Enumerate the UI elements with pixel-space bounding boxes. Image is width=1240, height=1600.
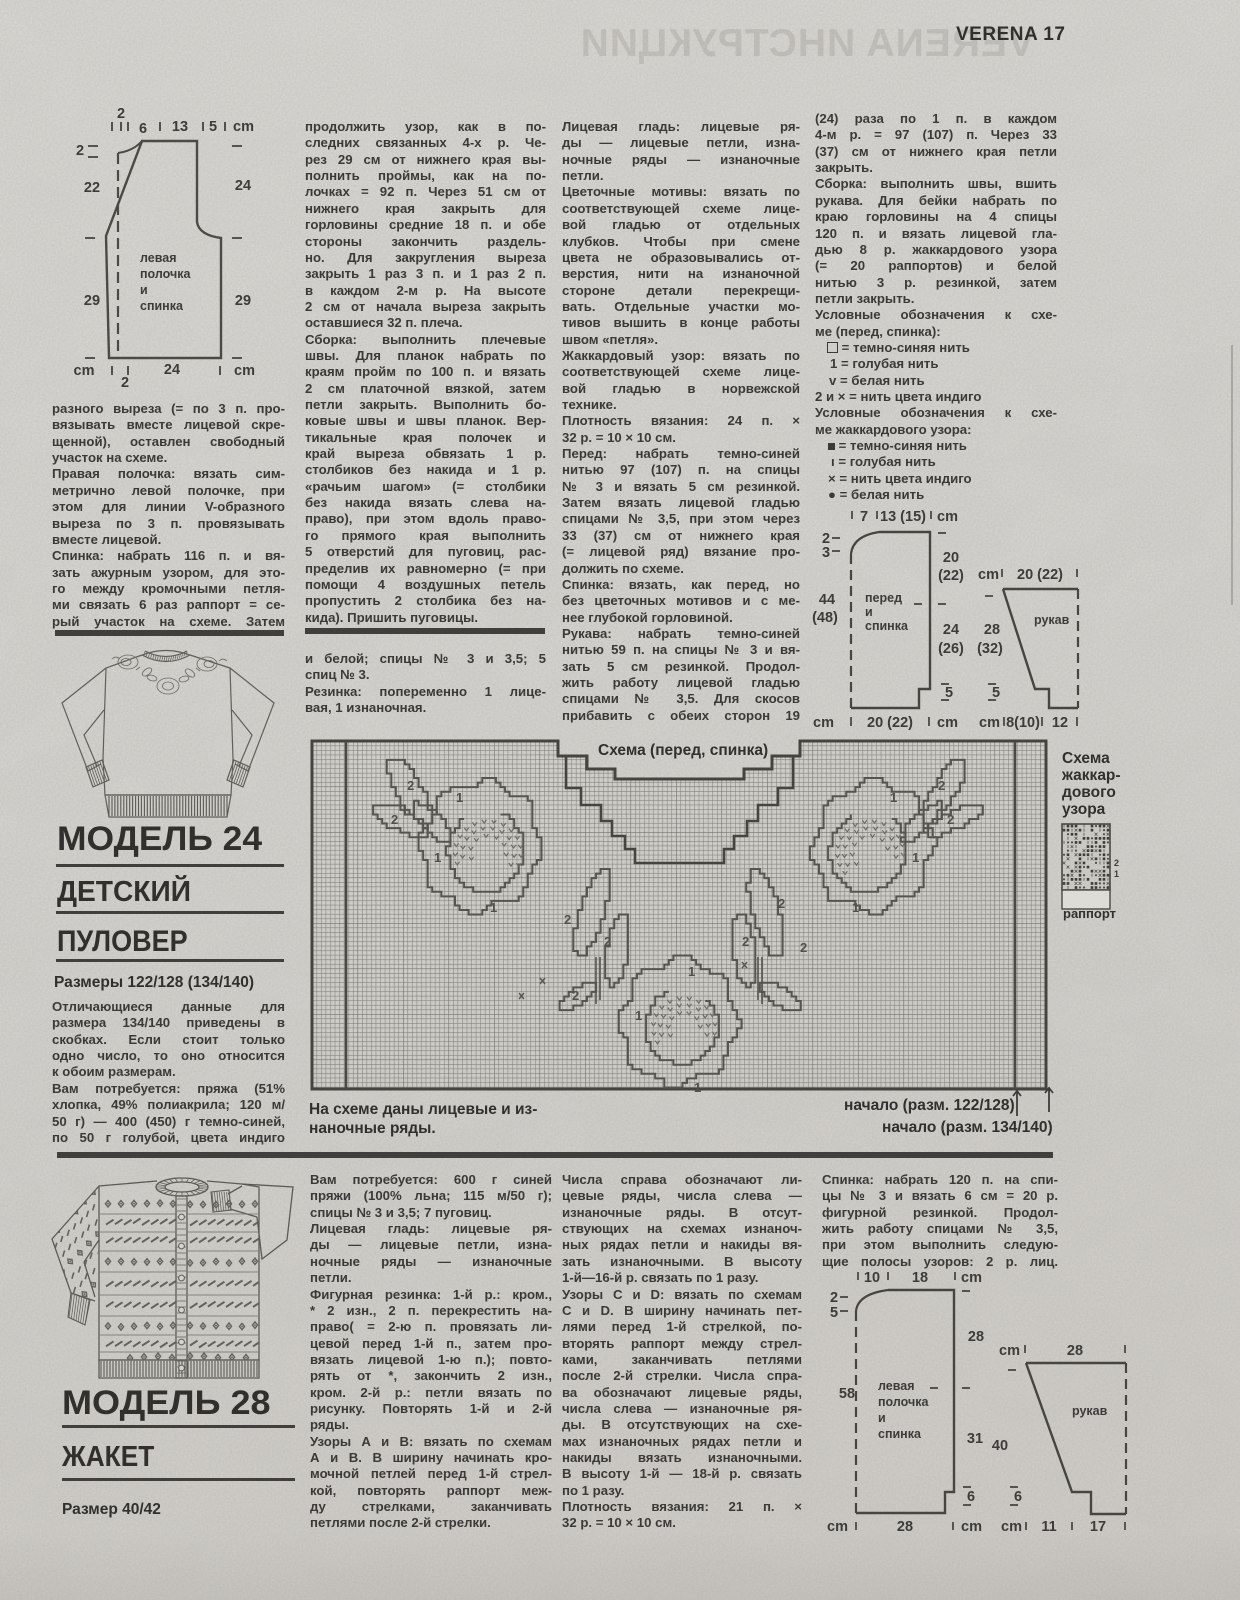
svg-text:28: 28 [968, 1329, 984, 1345]
svg-text:cm: cm [827, 1519, 848, 1535]
svg-text:и: и [878, 1411, 886, 1425]
svg-text:левая: левая [878, 1379, 915, 1393]
svg-text:10: 10 [864, 1270, 880, 1286]
svg-text:18: 18 [912, 1270, 928, 1286]
svg-text:5: 5 [830, 1305, 838, 1321]
svg-text:40: 40 [992, 1438, 1008, 1454]
svg-text:28: 28 [1067, 1343, 1083, 1359]
svg-text:28: 28 [897, 1519, 913, 1535]
svg-text:6: 6 [967, 1489, 975, 1505]
svg-text:спинка: спинка [878, 1427, 922, 1441]
svg-text:полочка: полочка [878, 1395, 929, 1409]
svg-text:рукав: рукав [1072, 1404, 1108, 1418]
svg-text:58: 58 [839, 1386, 855, 1402]
svg-text:cm: cm [961, 1519, 982, 1535]
svg-text:2: 2 [830, 1290, 838, 1306]
svg-text:31: 31 [967, 1431, 983, 1447]
svg-text:cm: cm [999, 1343, 1020, 1359]
svg-text:cm: cm [1001, 1519, 1022, 1535]
svg-text:11: 11 [1041, 1519, 1056, 1535]
svg-text:17: 17 [1090, 1519, 1106, 1535]
svg-text:cm: cm [961, 1270, 982, 1286]
svg-text:6: 6 [1014, 1489, 1022, 1505]
